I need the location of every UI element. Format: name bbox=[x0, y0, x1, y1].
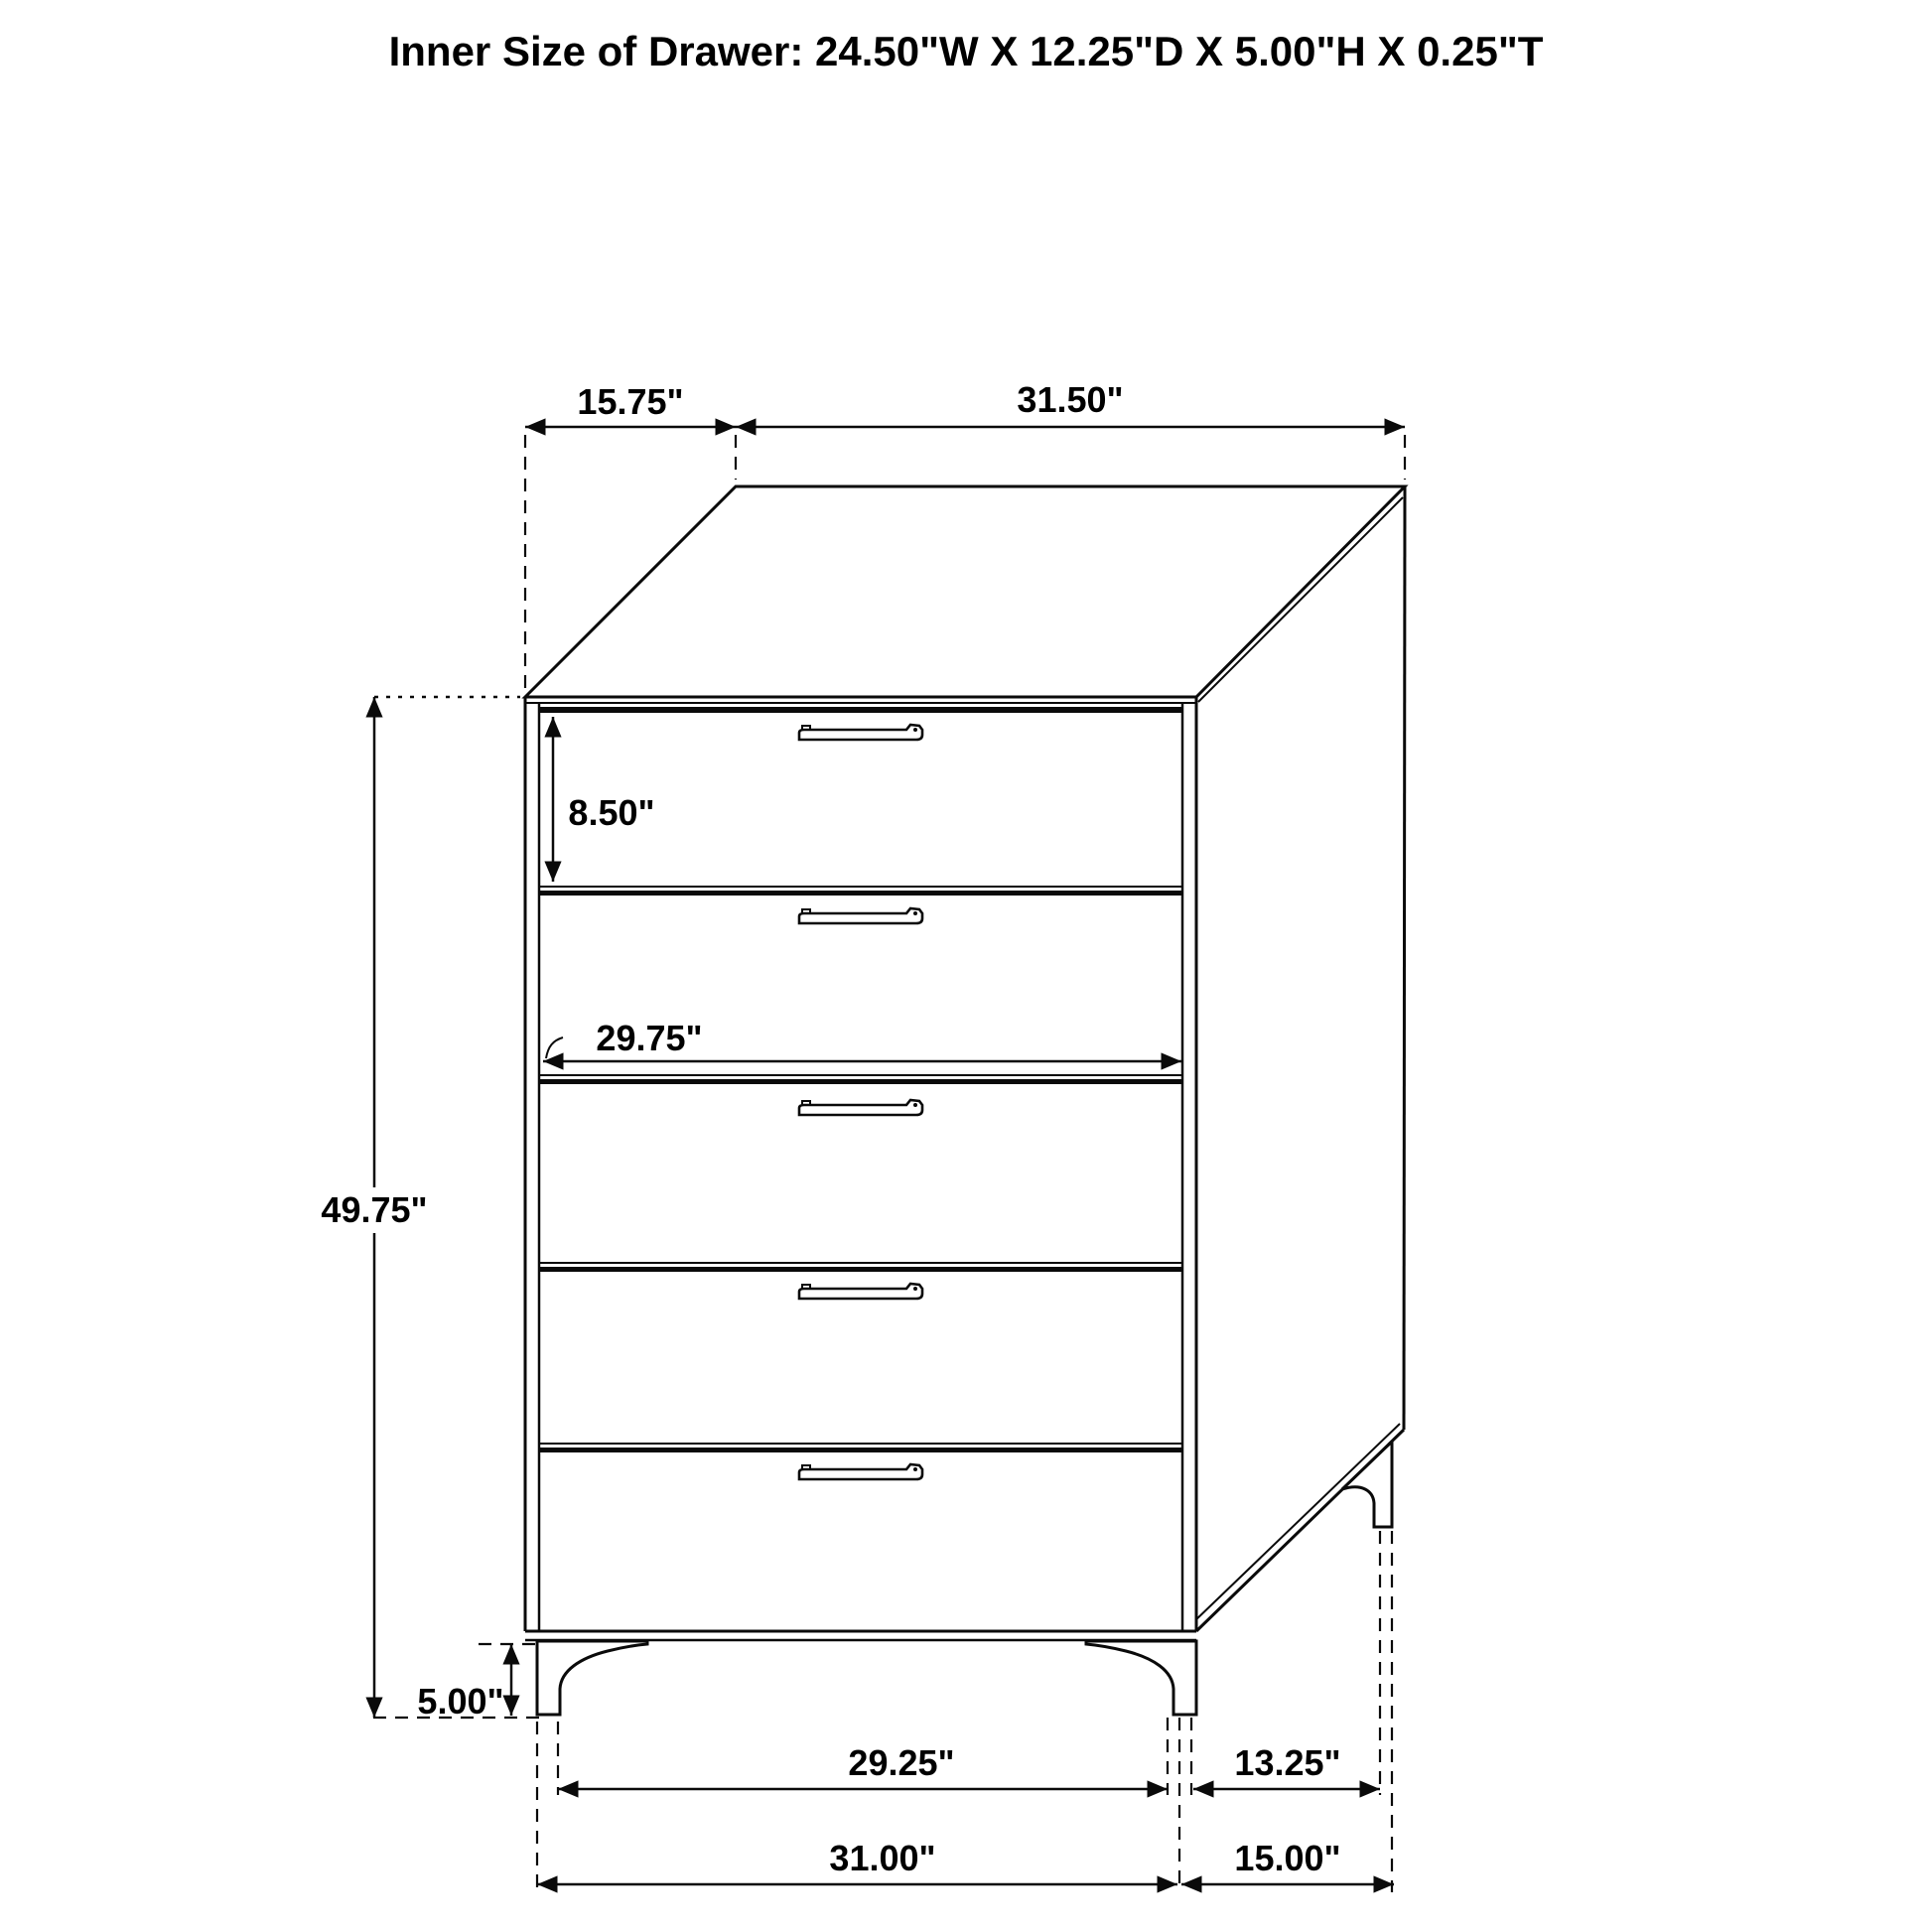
drawer-1-top-gap bbox=[539, 707, 1182, 713]
drawer-divider-4-band bbox=[539, 1448, 1182, 1452]
label-side-leg-span: 13.25" bbox=[1234, 1742, 1340, 1783]
label-leg-height: 5.00" bbox=[417, 1681, 503, 1722]
drawer-divider-1-band bbox=[539, 891, 1182, 896]
top-face-panel bbox=[525, 486, 1405, 697]
front-left-leg bbox=[537, 1641, 647, 1715]
front-face-panel bbox=[525, 697, 1196, 1631]
label-base-depth: 15.00" bbox=[1234, 1838, 1340, 1878]
cabinet-top-face bbox=[525, 486, 1405, 702]
side-back-edge bbox=[1404, 486, 1405, 1430]
label-overall-height: 49.75" bbox=[321, 1189, 427, 1230]
drawer-divider-2-band bbox=[539, 1079, 1182, 1084]
label-top-width: 31.50" bbox=[1017, 379, 1123, 420]
chest-dimension-drawing: Inner Size of Drawer: 24.50"W X 12.25"D … bbox=[0, 0, 1932, 1932]
label-top-depth: 15.75" bbox=[577, 381, 683, 422]
label-base-width: 31.00" bbox=[829, 1838, 935, 1878]
drawer-divider-3-band bbox=[539, 1267, 1182, 1272]
label-first-drawer-height: 8.50" bbox=[568, 792, 654, 833]
label-drawer-front-width: 29.75" bbox=[596, 1018, 702, 1058]
side-bottom-edge-inner bbox=[1192, 1424, 1400, 1623]
dimension-diagram-page: Inner Size of Drawer: 24.50"W X 12.25"D … bbox=[0, 0, 1932, 1932]
label-front-leg-span: 29.25" bbox=[848, 1742, 954, 1783]
cabinet-front-face bbox=[525, 697, 1196, 1640]
page-title: Inner Size of Drawer: 24.50"W X 12.25"D … bbox=[389, 28, 1544, 74]
front-right-leg bbox=[1086, 1641, 1196, 1715]
